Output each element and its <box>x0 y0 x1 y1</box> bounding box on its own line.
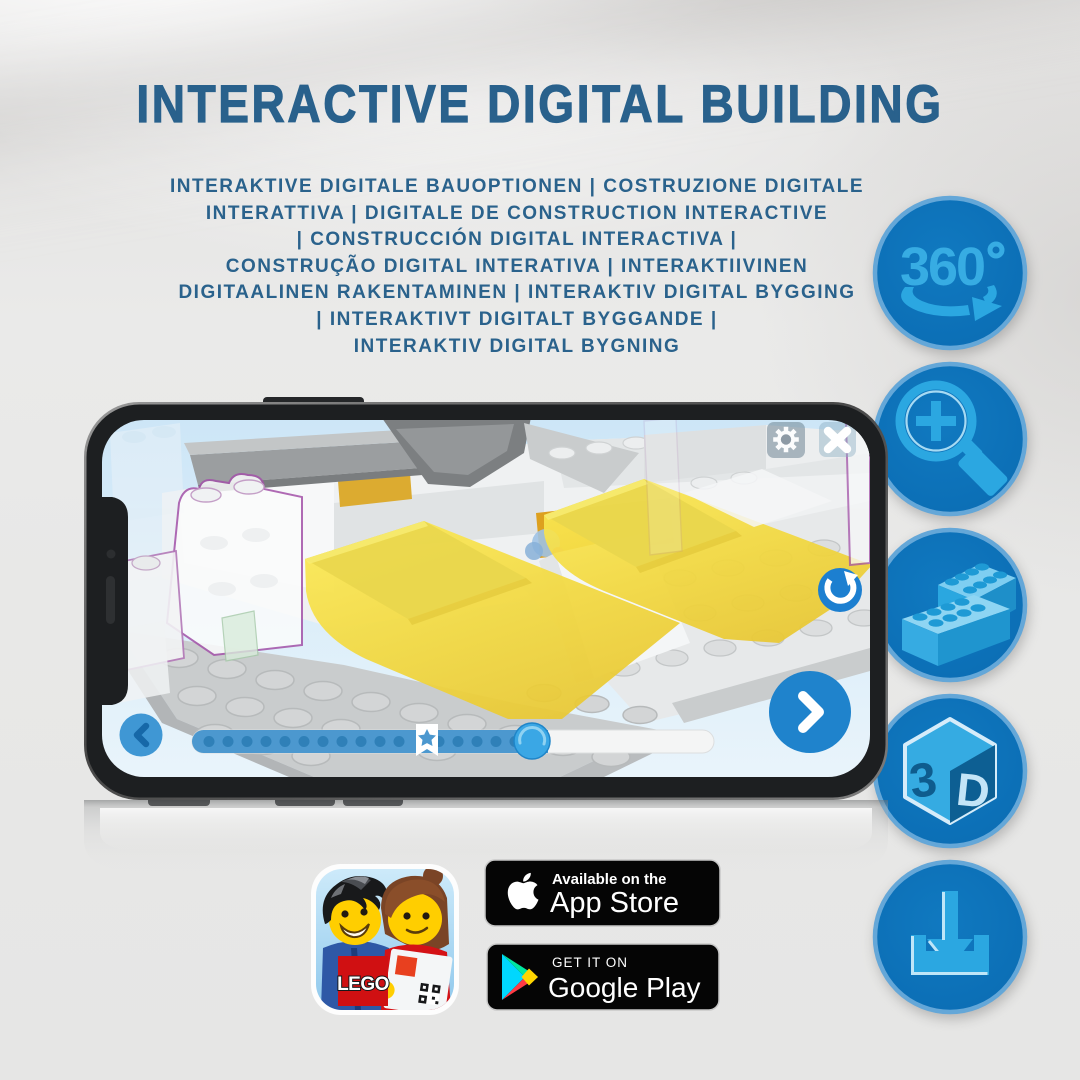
svg-text:GET IT ON: GET IT ON <box>552 955 628 970</box>
svg-text:App Store: App Store <box>550 887 679 919</box>
svg-text:LEGO: LEGO <box>337 974 389 995</box>
svg-text:Available on the: Available on the <box>552 871 666 888</box>
svg-text:D: D <box>954 763 992 818</box>
svg-text:Google Play: Google Play <box>548 972 701 1003</box>
svg-text:360: 360 <box>900 237 984 297</box>
